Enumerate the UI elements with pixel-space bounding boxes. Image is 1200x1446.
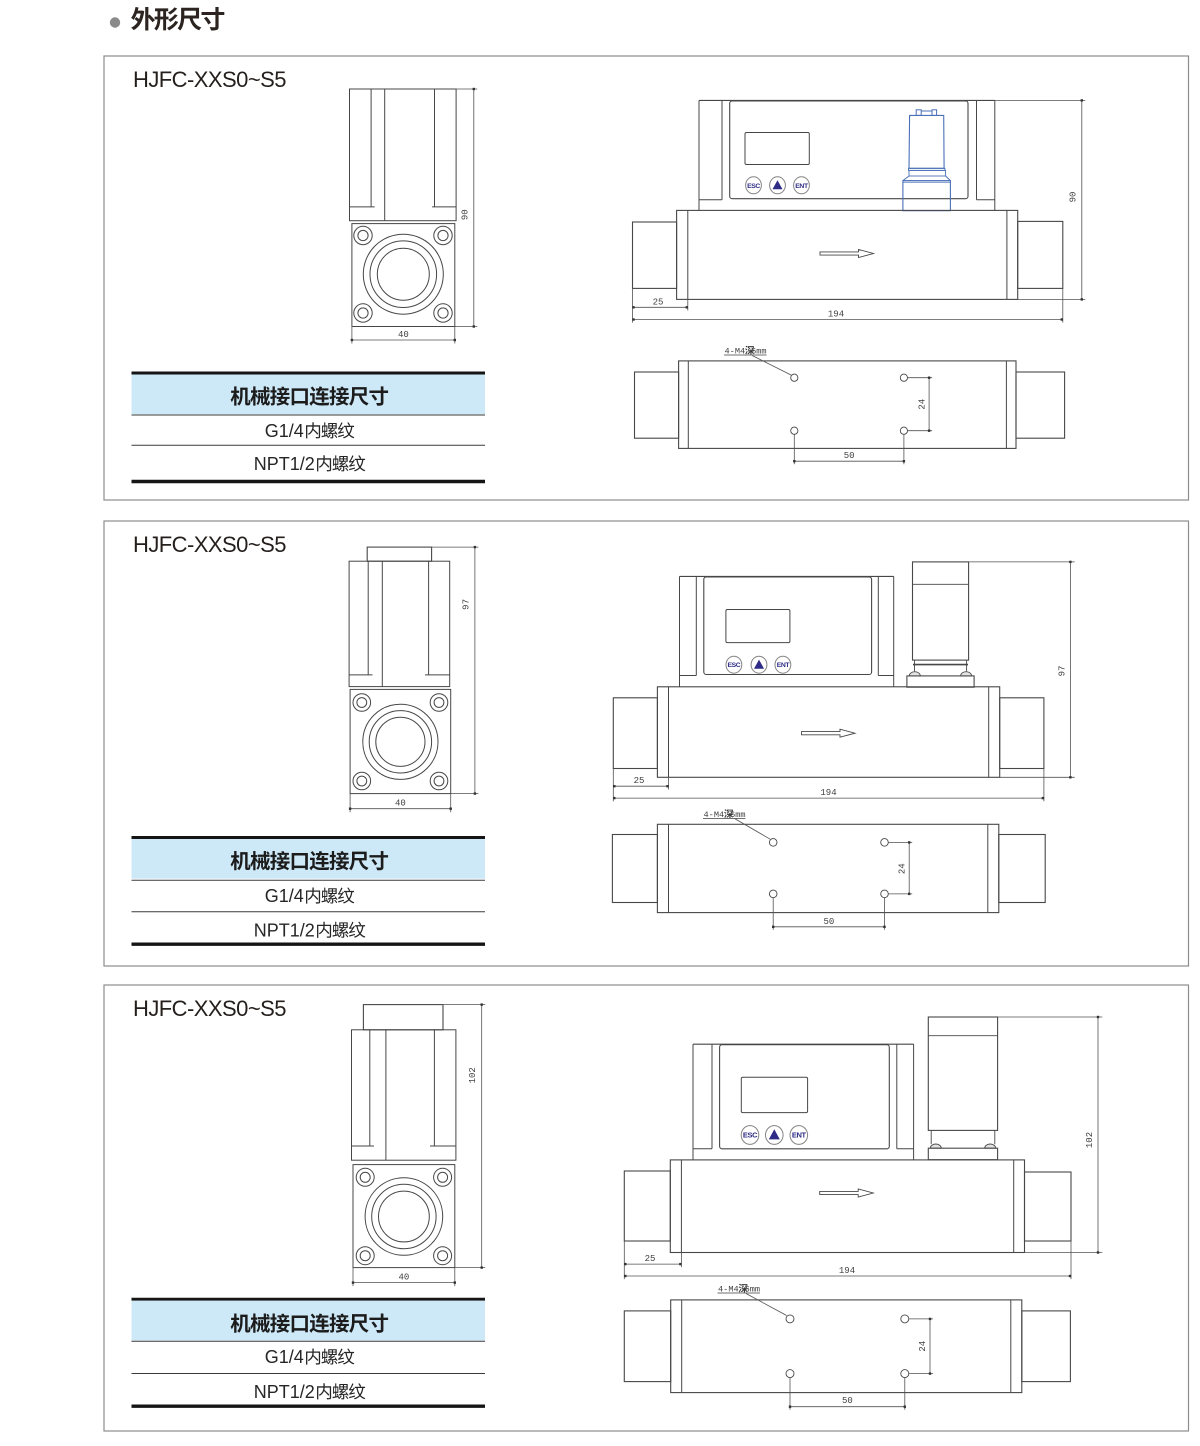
svg-text:102: 102 (468, 1067, 478, 1083)
svg-text:HJFC-XXS0~S5: HJFC-XXS0~S5 (133, 996, 286, 1021)
svg-text:NPT1/2: NPT1/2 (254, 1382, 315, 1402)
svg-text:NPT1/2: NPT1/2 (254, 920, 315, 940)
svg-text:194: 194 (828, 310, 844, 320)
svg-text:ENT: ENT (795, 183, 809, 190)
svg-text:194: 194 (839, 1266, 855, 1276)
svg-text:HJFC-XXS0~S5: HJFC-XXS0~S5 (133, 67, 286, 92)
svg-text:25: 25 (634, 776, 645, 786)
svg-text:G1/4: G1/4 (265, 886, 304, 906)
svg-text:194: 194 (820, 788, 836, 798)
svg-text:ENT: ENT (792, 1131, 807, 1140)
svg-text:ESC: ESC (747, 183, 760, 190)
svg-text:90: 90 (460, 209, 470, 220)
svg-text:24: 24 (898, 863, 908, 874)
svg-text:50: 50 (844, 451, 855, 461)
svg-text:NPT1/2: NPT1/2 (254, 454, 315, 474)
svg-text:40: 40 (395, 799, 406, 809)
svg-text:90: 90 (1069, 192, 1079, 203)
svg-text:25: 25 (653, 297, 664, 307)
svg-text:24: 24 (917, 399, 927, 410)
svg-text:102: 102 (1085, 1132, 1095, 1148)
svg-text:50: 50 (842, 1396, 853, 1406)
svg-text:G1/4: G1/4 (265, 1347, 304, 1367)
svg-text:97: 97 (1057, 666, 1067, 677)
svg-text:ESC: ESC (743, 1131, 758, 1140)
svg-text:97: 97 (461, 599, 471, 610)
svg-text:24: 24 (918, 1341, 928, 1352)
svg-text:ESC: ESC (728, 662, 741, 669)
svg-text:G1/4: G1/4 (265, 421, 304, 441)
svg-text:ENT: ENT (777, 662, 791, 669)
svg-text:25: 25 (645, 1254, 656, 1264)
svg-text:40: 40 (398, 330, 409, 340)
svg-text:40: 40 (398, 1273, 409, 1283)
svg-text:HJFC-XXS0~S5: HJFC-XXS0~S5 (133, 532, 286, 557)
svg-text:50: 50 (823, 917, 834, 927)
